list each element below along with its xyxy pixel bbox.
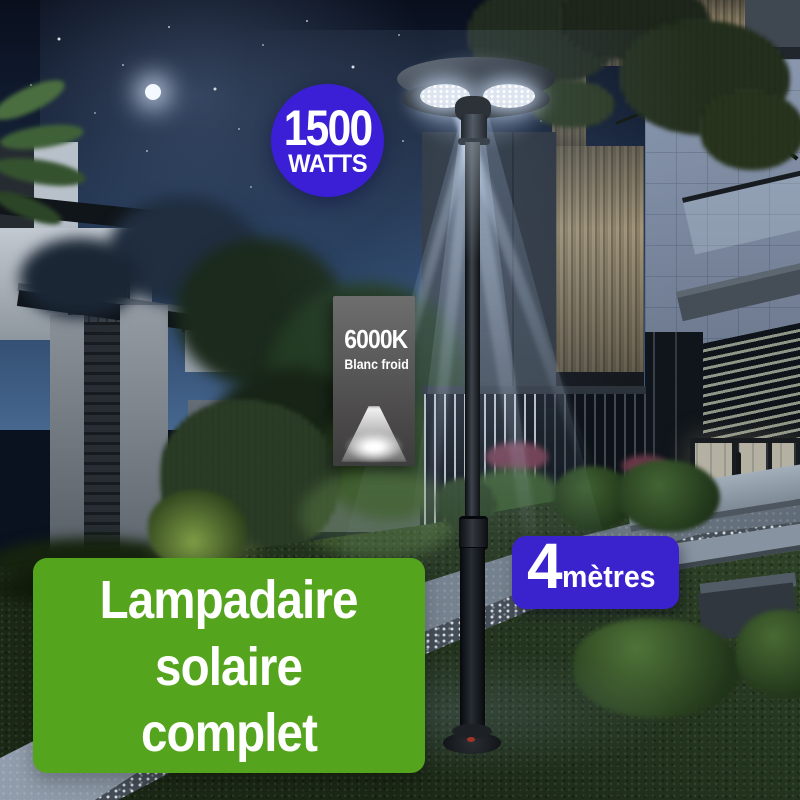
power-value: 1500 (284, 105, 372, 151)
lamp-pole-lower (460, 548, 485, 744)
base-red-mark (467, 737, 475, 742)
moon (145, 84, 161, 100)
height-value: 4 (527, 534, 563, 598)
power-badge: 1500 WATTS (271, 84, 384, 197)
tree-foliage (20, 238, 140, 318)
title-line-1: Lampadaire (100, 566, 358, 634)
product-title-badge: Lampadaire solaire complet (33, 558, 425, 773)
pole-base-collar (452, 724, 492, 738)
gate-door (84, 322, 120, 557)
tree-canopy (700, 90, 800, 170)
left-tower-dark-panel (0, 140, 34, 240)
pole-coupling (459, 516, 488, 550)
bush (618, 460, 720, 532)
title-line-3: complet (141, 700, 317, 766)
color-temp-panel: 6000K Blanc froid (333, 296, 415, 466)
gate-pillar-left (50, 315, 84, 561)
height-badge: 4 mètres (512, 536, 679, 609)
product-photo: 6000K Blanc froid 1500 WATTS 4 mètres La… (0, 0, 800, 800)
height-unit: mètres (562, 561, 656, 592)
title-line-2: solaire (155, 634, 302, 700)
star-field (0, 0, 2, 2)
lamp-pole-upper (465, 142, 480, 524)
panel-light-hotspot (345, 432, 403, 462)
power-unit: WATTS (288, 151, 367, 177)
